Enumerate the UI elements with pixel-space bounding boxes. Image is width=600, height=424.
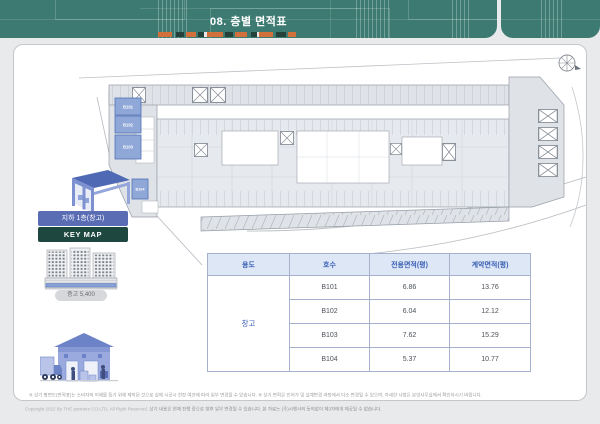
- contract-cell: 10.77: [450, 348, 531, 372]
- exclusive-cell: 6.86: [370, 276, 450, 300]
- warehouse-icon: [70, 167, 132, 211]
- unit-b104-label: B104: [135, 188, 145, 192]
- table-row: 창고 B101 6.86 13.76: [208, 276, 531, 300]
- content-card: B101 B102 B103 B104 지하 1층: [13, 44, 587, 401]
- col-unit: 호수: [290, 254, 370, 276]
- contract-cell: 12.12: [450, 300, 531, 324]
- exclusive-cell: 5.37: [370, 348, 450, 372]
- unit-b101-label: B101: [123, 105, 134, 110]
- unit-cell: B104: [290, 348, 370, 372]
- unit-cell: B101: [290, 276, 370, 300]
- col-exclusive-area: 전용면적(평): [370, 254, 450, 276]
- header-accent-strip: [158, 32, 296, 37]
- unit-cell: B102: [290, 300, 370, 324]
- header-band-right: [501, 0, 600, 38]
- unit-cell: B103: [290, 324, 370, 348]
- north-arrow-icon: [559, 55, 581, 71]
- copyright-ko: 상기 내용은 현재 진행 중으로 향후 일부 변경될 수 있습니다. 본 자료는…: [149, 407, 381, 412]
- page-title: 08. 층별 면적표: [0, 13, 497, 29]
- col-usage: 용도: [208, 254, 290, 276]
- brochure-page: 08. 층별 면적표: [0, 0, 600, 424]
- copyright-line: Copyright 2022 By THE partners CO.LTD. A…: [25, 405, 595, 412]
- copyright-en: Copyright 2022 By THE partners CO.LTD. A…: [25, 407, 148, 412]
- highlighted-b1-floor: [46, 284, 116, 288]
- exclusive-cell: 7.62: [370, 324, 450, 348]
- exclusive-cell: 6.04: [370, 300, 450, 324]
- contract-cell: 15.29: [450, 324, 531, 348]
- loading-dock-illustration: [40, 327, 122, 391]
- col-contract-area: 계약면적(평): [450, 254, 531, 276]
- table-header-row: 용도 호수 전용면적(평) 계약면적(평): [208, 254, 531, 276]
- header-deco-line: [501, 19, 600, 20]
- floor-label-button: 지하 1층(창고): [38, 211, 128, 226]
- building-elevation-icon: [44, 247, 118, 291]
- unit-b103-label: B103: [123, 145, 134, 150]
- unit-b102-label: B102: [123, 123, 134, 128]
- header-band: 08. 층별 면적표: [0, 0, 497, 38]
- floor-height-badge: 층고 5,400: [55, 290, 107, 301]
- usage-cell: 창고: [208, 276, 290, 372]
- contract-cell: 13.76: [450, 276, 531, 300]
- area-table: 용도 호수 전용면적(평) 계약면적(평) 창고 B101 6.86 13.76…: [207, 253, 531, 372]
- disclaimer-text: ※ 상기 평면도(면적표)는 소비자의 이해를 돕기 위해 제작된 것으로 실제…: [29, 391, 577, 398]
- keymap-button: KEY MAP: [38, 227, 128, 242]
- floor-plan: B101 B102 B103 B104: [72, 47, 586, 271]
